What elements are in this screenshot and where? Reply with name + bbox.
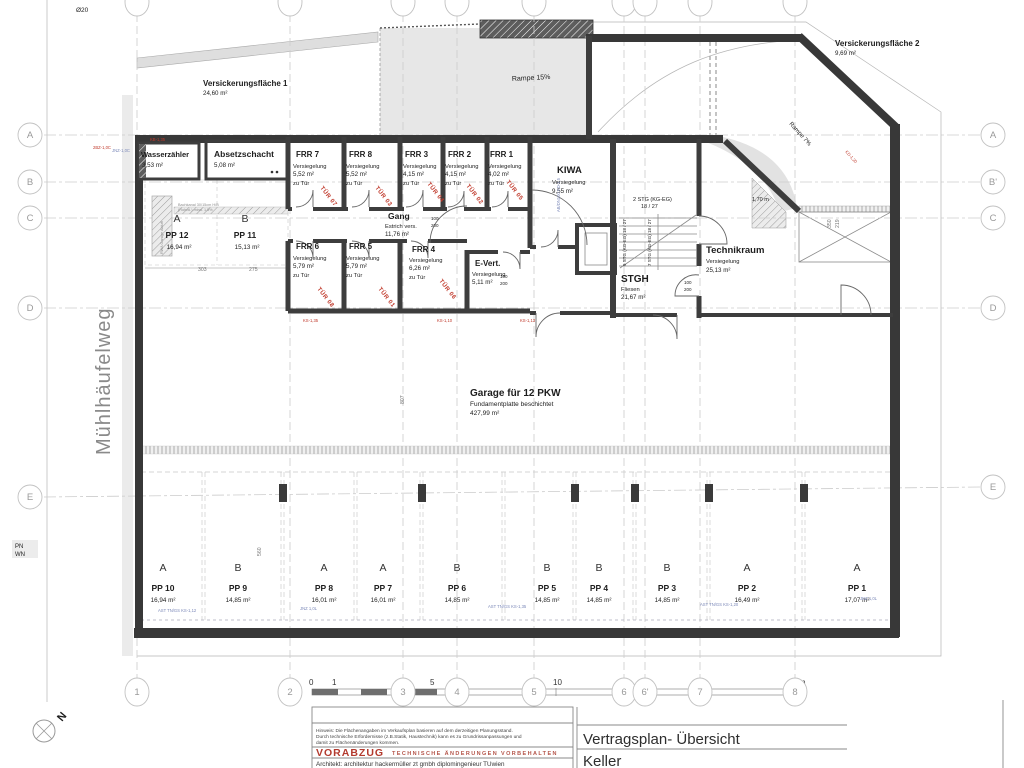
svg-text:TÜR 08: TÜR 08 — [315, 286, 335, 309]
svg-text:D: D — [27, 303, 34, 314]
svg-text:Versiegelung: Versiegelung — [403, 164, 437, 170]
svg-text:damit zu Flächenänderungen kom: damit zu Flächenänderungen kommen. — [316, 740, 399, 746]
svg-text:TECHNISCHE ÄNDERUNGEN VORBEHAL: TECHNISCHE ÄNDERUNGEN VORBEHALTEN — [392, 750, 558, 757]
svg-text:A: A — [159, 562, 166, 574]
pp11-label: PP 11 — [234, 230, 257, 240]
svg-text:TÜR 07: TÜR 07 — [318, 185, 338, 208]
svg-text:E: E — [27, 492, 33, 503]
svg-text:B: B — [663, 562, 670, 574]
svg-text:2: 2 — [287, 687, 292, 698]
svg-text:5,52 m²: 5,52 m² — [293, 171, 314, 178]
svg-text:5: 5 — [531, 687, 536, 698]
svg-text:zu Tür: zu Tür — [409, 275, 425, 281]
svg-text:1,70 m: 1,70 m — [752, 197, 769, 203]
svg-text:2BZ-1,0C: 2BZ-1,0C — [93, 145, 111, 150]
versickerung1-area: 24,60 m² — [203, 90, 227, 97]
svg-text:A: A — [990, 130, 997, 141]
svg-text:350: 350 — [827, 219, 833, 228]
title-hinweis: Hinweis: Die Flächenangaben im Verkaufsp… — [316, 728, 513, 734]
svg-text:Versiegelung: Versiegelung — [445, 164, 479, 170]
svg-text:A: A — [743, 562, 750, 574]
room-frr7: FRR 7 — [296, 150, 320, 159]
svg-text:5,11 m²: 5,11 m² — [472, 279, 493, 286]
svg-text:427,99 m²: 427,99 m² — [470, 410, 500, 417]
svg-text:E: E — [990, 482, 996, 493]
svg-text:1: 1 — [134, 687, 139, 698]
svg-text:275: 275 — [249, 267, 258, 273]
svg-text:6: 6 — [621, 687, 626, 698]
pp8-label: PP 8 — [315, 583, 334, 593]
svg-text:AST TN/GS KS-1,12: AST TN/GS KS-1,12 — [158, 608, 197, 613]
svg-text:18 / 27: 18 / 27 — [641, 204, 658, 210]
north-label: N — [55, 710, 69, 724]
stairs-flight9: 9 STG (KG-EG) 18 / 27 — [622, 219, 627, 266]
svg-text:Durch technische Erfordernisse: Durch technische Erfordernisse (z.B.Stat… — [316, 734, 522, 740]
svg-text:JNZ-1,0C: JNZ-1,0C — [112, 148, 130, 153]
pp10-label: PP 10 — [151, 583, 174, 593]
svg-text:TÜR 06: TÜR 06 — [437, 278, 457, 301]
diameter-note: Ø20 — [76, 7, 89, 14]
svg-text:Fundamentplatte beschichtet: Fundamentplatte beschichtet — [470, 401, 554, 408]
svg-text:B: B — [27, 177, 33, 188]
room-frr5: FRR 5 — [349, 242, 373, 251]
svg-text:zu Tür: zu Tür — [488, 181, 504, 187]
svg-text:16,94 m²: 16,94 m² — [151, 597, 176, 604]
svg-text:JNZ 1,0L: JNZ 1,0L — [300, 606, 318, 611]
svg-text:Fliesen: Fliesen — [621, 287, 640, 293]
svg-text:16,01 m²: 16,01 m² — [371, 597, 396, 604]
svg-text:560: 560 — [257, 547, 263, 556]
svg-text:10: 10 — [553, 678, 562, 687]
svg-text:5,08 m²: 5,08 m² — [214, 162, 235, 169]
svg-text:14,85 m²: 14,85 m² — [226, 597, 251, 604]
svg-text:Versiegelung: Versiegelung — [346, 256, 380, 262]
versickerung2-label: Versickerungsfläche 2 — [835, 39, 920, 48]
svg-text:A: A — [379, 562, 386, 574]
svg-text:TÜR 01: TÜR 01 — [376, 286, 396, 309]
room-kiwa: KIWA — [557, 165, 582, 176]
svg-text:B: B — [234, 562, 241, 574]
svg-text:Versiegelung: Versiegelung — [346, 164, 380, 170]
svg-text:AST TN/GS KS-1,35: AST TN/GS KS-1,35 — [488, 604, 527, 609]
room-evert: E-Vert. — [475, 259, 500, 268]
svg-text:A: A — [853, 562, 860, 574]
svg-text:5: 5 — [430, 678, 435, 687]
svg-text:KD-1,20: KD-1,20 — [844, 149, 858, 164]
svg-text:B': B' — [989, 177, 997, 188]
svg-text:zu Tür: zu Tür — [293, 273, 309, 279]
svg-text:200: 200 — [431, 223, 439, 228]
svg-text:5,52 m²: 5,52 m² — [346, 171, 367, 178]
versickerung1-label: Versickerungsfläche 1 — [203, 79, 288, 88]
elevator-shaft — [577, 225, 615, 273]
room-frr8: FRR 8 — [349, 150, 373, 159]
svg-text:A: A — [173, 213, 180, 225]
svg-text:C: C — [27, 213, 34, 224]
svg-text:TÜR 02: TÜR 02 — [464, 183, 484, 206]
svg-text:KS-1,10: KS-1,10 — [437, 318, 453, 323]
staircase — [619, 214, 697, 270]
svg-text:C: C — [990, 213, 997, 224]
svg-text:5,79 m²: 5,79 m² — [293, 263, 314, 270]
versickerung2-area: 9,69 m² — [835, 50, 856, 57]
scale-bar: 0 1 5 10 20m — [309, 678, 806, 696]
svg-text:KB-1,35: KB-1,35 — [150, 137, 166, 142]
svg-text:11,76 m²: 11,76 m² — [385, 231, 409, 238]
svg-text:TÜR 03: TÜR 03 — [373, 185, 393, 208]
svg-text:zu Tür: zu Tür — [346, 273, 362, 279]
pp6-label: PP 6 — [448, 583, 467, 593]
svg-text:807: 807 — [400, 395, 406, 404]
svg-text:Bachkanal 30/15cm H/B: Bachkanal 30/15cm H/B — [178, 203, 219, 207]
room-technikraum: Technikraum — [706, 245, 764, 256]
stairs-label-top: 2 STG (KG-EG) — [633, 197, 672, 203]
room-frr6: FRR 6 — [296, 242, 320, 251]
svg-text:303: 303 — [198, 267, 207, 273]
room-frr4: FRR 4 — [412, 245, 436, 254]
svg-text:B: B — [595, 562, 602, 574]
svg-text:7: 7 — [697, 687, 702, 698]
svg-text:3: 3 — [400, 687, 405, 698]
pp4-label: PP 4 — [590, 583, 609, 593]
svg-text:6,26 m²: 6,26 m² — [409, 265, 430, 272]
floor-plan-sheet: Versickerungsfläche 1 24,60 m² Versicker… — [0, 0, 1024, 768]
svg-text:AST TN/GS KS-1,20: AST TN/GS KS-1,20 — [700, 602, 739, 607]
parking-labels: A PP 12 16,94 m² B PP 11 15,13 m² A PP 1… — [151, 213, 870, 604]
title-block: Hinweis: Die Flächenangaben im Verkaufsp… — [312, 700, 1003, 768]
pp9-label: PP 9 — [229, 583, 248, 593]
svg-text:D: D — [990, 303, 997, 314]
svg-text:Versiegelung: Versiegelung — [409, 258, 443, 264]
garage-label: Garage für 12 PKW — [470, 388, 561, 399]
plan-subtitle: Keller — [583, 753, 621, 768]
pp1-label: PP 1 — [848, 583, 867, 593]
svg-text:Versiegelung: Versiegelung — [488, 164, 522, 170]
svg-text:0: 0 — [309, 678, 314, 687]
svg-text:AB/DN100 KD-1,5: AB/DN100 KD-1,5 — [556, 177, 561, 212]
pp5-label: PP 5 — [538, 583, 557, 593]
svg-text:zu Tür: zu Tür — [293, 181, 309, 187]
pp7-label: PP 7 — [374, 583, 393, 593]
svg-text:Versiegelung: Versiegelung — [293, 164, 327, 170]
svg-text:4: 4 — [454, 687, 459, 698]
room-stgh: STGH — [621, 274, 649, 285]
svg-text:(Rohrkl.) mind. 1,5%: (Rohrkl.) mind. 1,5% — [178, 208, 213, 212]
svg-text:15,13 m²: 15,13 m² — [235, 244, 260, 251]
room-absetzschacht: Absetzschacht — [214, 149, 274, 159]
room-frr3: FRR 3 — [405, 150, 429, 159]
pp12-label: PP 12 — [165, 230, 188, 240]
svg-text:21,67 m²: 21,67 m² — [621, 294, 645, 301]
svg-text:100: 100 — [684, 280, 692, 285]
svg-text:RWA Garage Abluft: RWA Garage Abluft — [160, 220, 164, 254]
svg-text:14,85 m²: 14,85 m² — [587, 597, 612, 604]
svg-text:A: A — [27, 130, 34, 141]
room-frr2: FRR 2 — [448, 150, 472, 159]
svg-text:100: 100 — [500, 274, 508, 279]
svg-text:4,15 m²: 4,15 m² — [445, 171, 466, 178]
svg-text:zu Tür: zu Tür — [403, 181, 419, 187]
north-arrow: N — [33, 710, 69, 742]
pp3-label: PP 3 — [658, 583, 677, 593]
svg-text:Versiegelung: Versiegelung — [706, 259, 740, 265]
room-gang: Gang — [388, 211, 410, 221]
wn-label: WN — [15, 552, 25, 558]
pp2-label: PP 2 — [738, 583, 757, 593]
svg-text:B: B — [543, 562, 550, 574]
svg-text:100: 100 — [431, 216, 439, 221]
svg-text:zu Tür: zu Tür — [445, 181, 461, 187]
svg-text:Versiegelung: Versiegelung — [293, 256, 327, 262]
pn-label: PN — [15, 544, 23, 550]
svg-text:16,49 m²: 16,49 m² — [735, 597, 760, 604]
svg-text:14,85 m²: 14,85 m² — [655, 597, 680, 604]
architect-line: Architekt: architektur hackermüller zt g… — [316, 761, 505, 768]
vorabzug-stamp: VORABZUG — [316, 747, 384, 759]
svg-text:200: 200 — [684, 287, 692, 292]
svg-text:200: 200 — [500, 281, 508, 286]
pp12-pp11-stalls — [145, 180, 290, 268]
svg-text:6': 6' — [641, 687, 648, 698]
svg-text:16,01 m²: 16,01 m² — [312, 597, 337, 604]
garage-columns — [279, 484, 808, 502]
svg-text:A: A — [320, 562, 327, 574]
svg-text:4,15 m²: 4,15 m² — [403, 171, 424, 178]
svg-text:25,13 m²: 25,13 m² — [706, 267, 730, 274]
svg-text:KS-1,13: KS-1,13 — [520, 318, 536, 323]
plan-title: Vertragsplan- Übersicht — [583, 730, 741, 748]
svg-text:Estrich vers.: Estrich vers. — [385, 224, 417, 230]
svg-text:B: B — [241, 213, 248, 225]
svg-text:5,79 m²: 5,79 m² — [346, 263, 367, 270]
svg-text:JNZ 1,0L: JNZ 1,0L — [860, 596, 878, 601]
svg-text:zu Tür: zu Tür — [346, 181, 362, 187]
svg-text:8: 8 — [792, 687, 797, 698]
svg-text:14,85 m²: 14,85 m² — [445, 597, 470, 604]
svg-text:16,94 m²: 16,94 m² — [167, 244, 192, 251]
svg-text:B: B — [453, 562, 460, 574]
stairs-flight7: 7 STG (KG-EG) 18 / 27 — [647, 219, 652, 266]
svg-text:KS-1,35: KS-1,35 — [303, 318, 319, 323]
street-name: Mühlhäufelweg — [93, 307, 115, 455]
svg-text:1: 1 — [332, 678, 337, 687]
svg-text:3,53 m²: 3,53 m² — [142, 162, 163, 169]
svg-text:219: 219 — [835, 219, 841, 228]
svg-text:14,85 m²: 14,85 m² — [535, 597, 560, 604]
floor-plan-drawing: Versickerungsfläche 1 24,60 m² Versicker… — [0, 0, 1024, 768]
svg-text:4,02 m²: 4,02 m² — [488, 171, 509, 178]
room-wasserzaehler: Wasserzähler — [141, 150, 189, 159]
room-frr1: FRR 1 — [490, 150, 514, 159]
